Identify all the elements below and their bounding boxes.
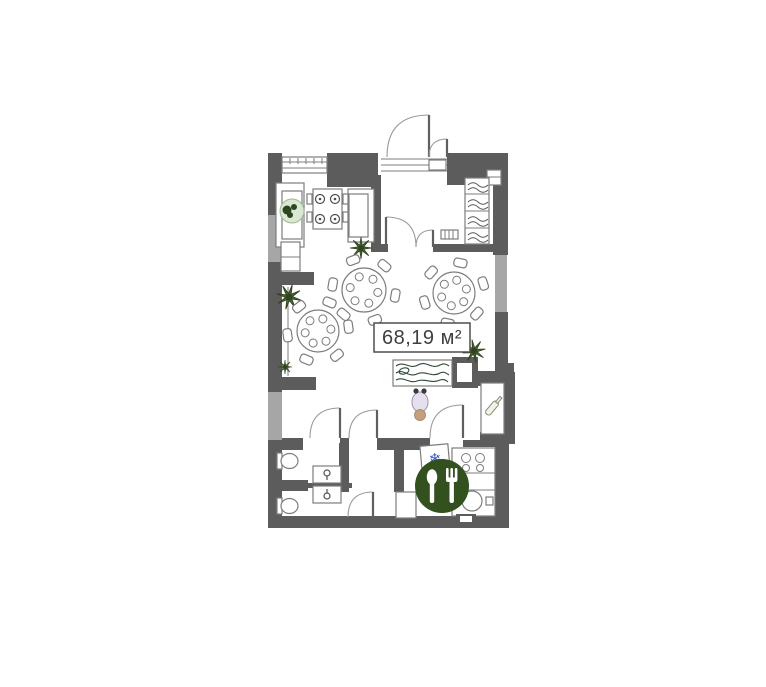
window: [282, 157, 327, 173]
wall-segment: [394, 438, 404, 492]
wall-segment: [433, 244, 495, 252]
restaurant-icon: [415, 459, 469, 513]
chair: [343, 194, 348, 204]
wall-segment: [495, 444, 509, 528]
dining-table: [282, 296, 353, 366]
dining-table: [327, 254, 400, 326]
floor-plan: ❄ 68,19 м²: [0, 0, 766, 687]
chair: [343, 212, 348, 222]
wall-segment: [493, 153, 508, 255]
wall-segment: [463, 440, 496, 447]
sink-icon: [313, 466, 341, 483]
figurine-icon: [412, 388, 428, 420]
wall-segment: [268, 480, 308, 491]
floor-plan-page: ❄ 68,19 м²: [0, 0, 766, 687]
toilet-icon: [277, 498, 298, 514]
sink-tap: [486, 497, 493, 505]
area-label-group: 68,19 м²: [374, 323, 470, 352]
plinth-vent-inner: [460, 516, 472, 522]
kitchen-area: ❄: [396, 444, 495, 526]
bedroom-area: [441, 178, 489, 244]
chair: [307, 194, 312, 204]
kitchen-cabinet: [396, 492, 416, 518]
pantry-area: [481, 383, 504, 434]
area-label: 68,19 м²: [382, 327, 462, 349]
wall-segment: [327, 153, 378, 187]
wall-segment: [268, 377, 316, 390]
dining-table: [419, 257, 490, 328]
wall-window-segment: [495, 255, 507, 312]
toilet-icon: [277, 453, 298, 469]
sofa-seat: [349, 194, 368, 237]
wall-window-segment: [268, 392, 282, 440]
sink-icon: [313, 486, 341, 503]
duct-shaft-inner: [457, 363, 472, 382]
threshold-box: [429, 160, 446, 170]
wall-segment: [268, 272, 314, 285]
chair: [307, 212, 312, 222]
plant-icon: [278, 360, 292, 374]
